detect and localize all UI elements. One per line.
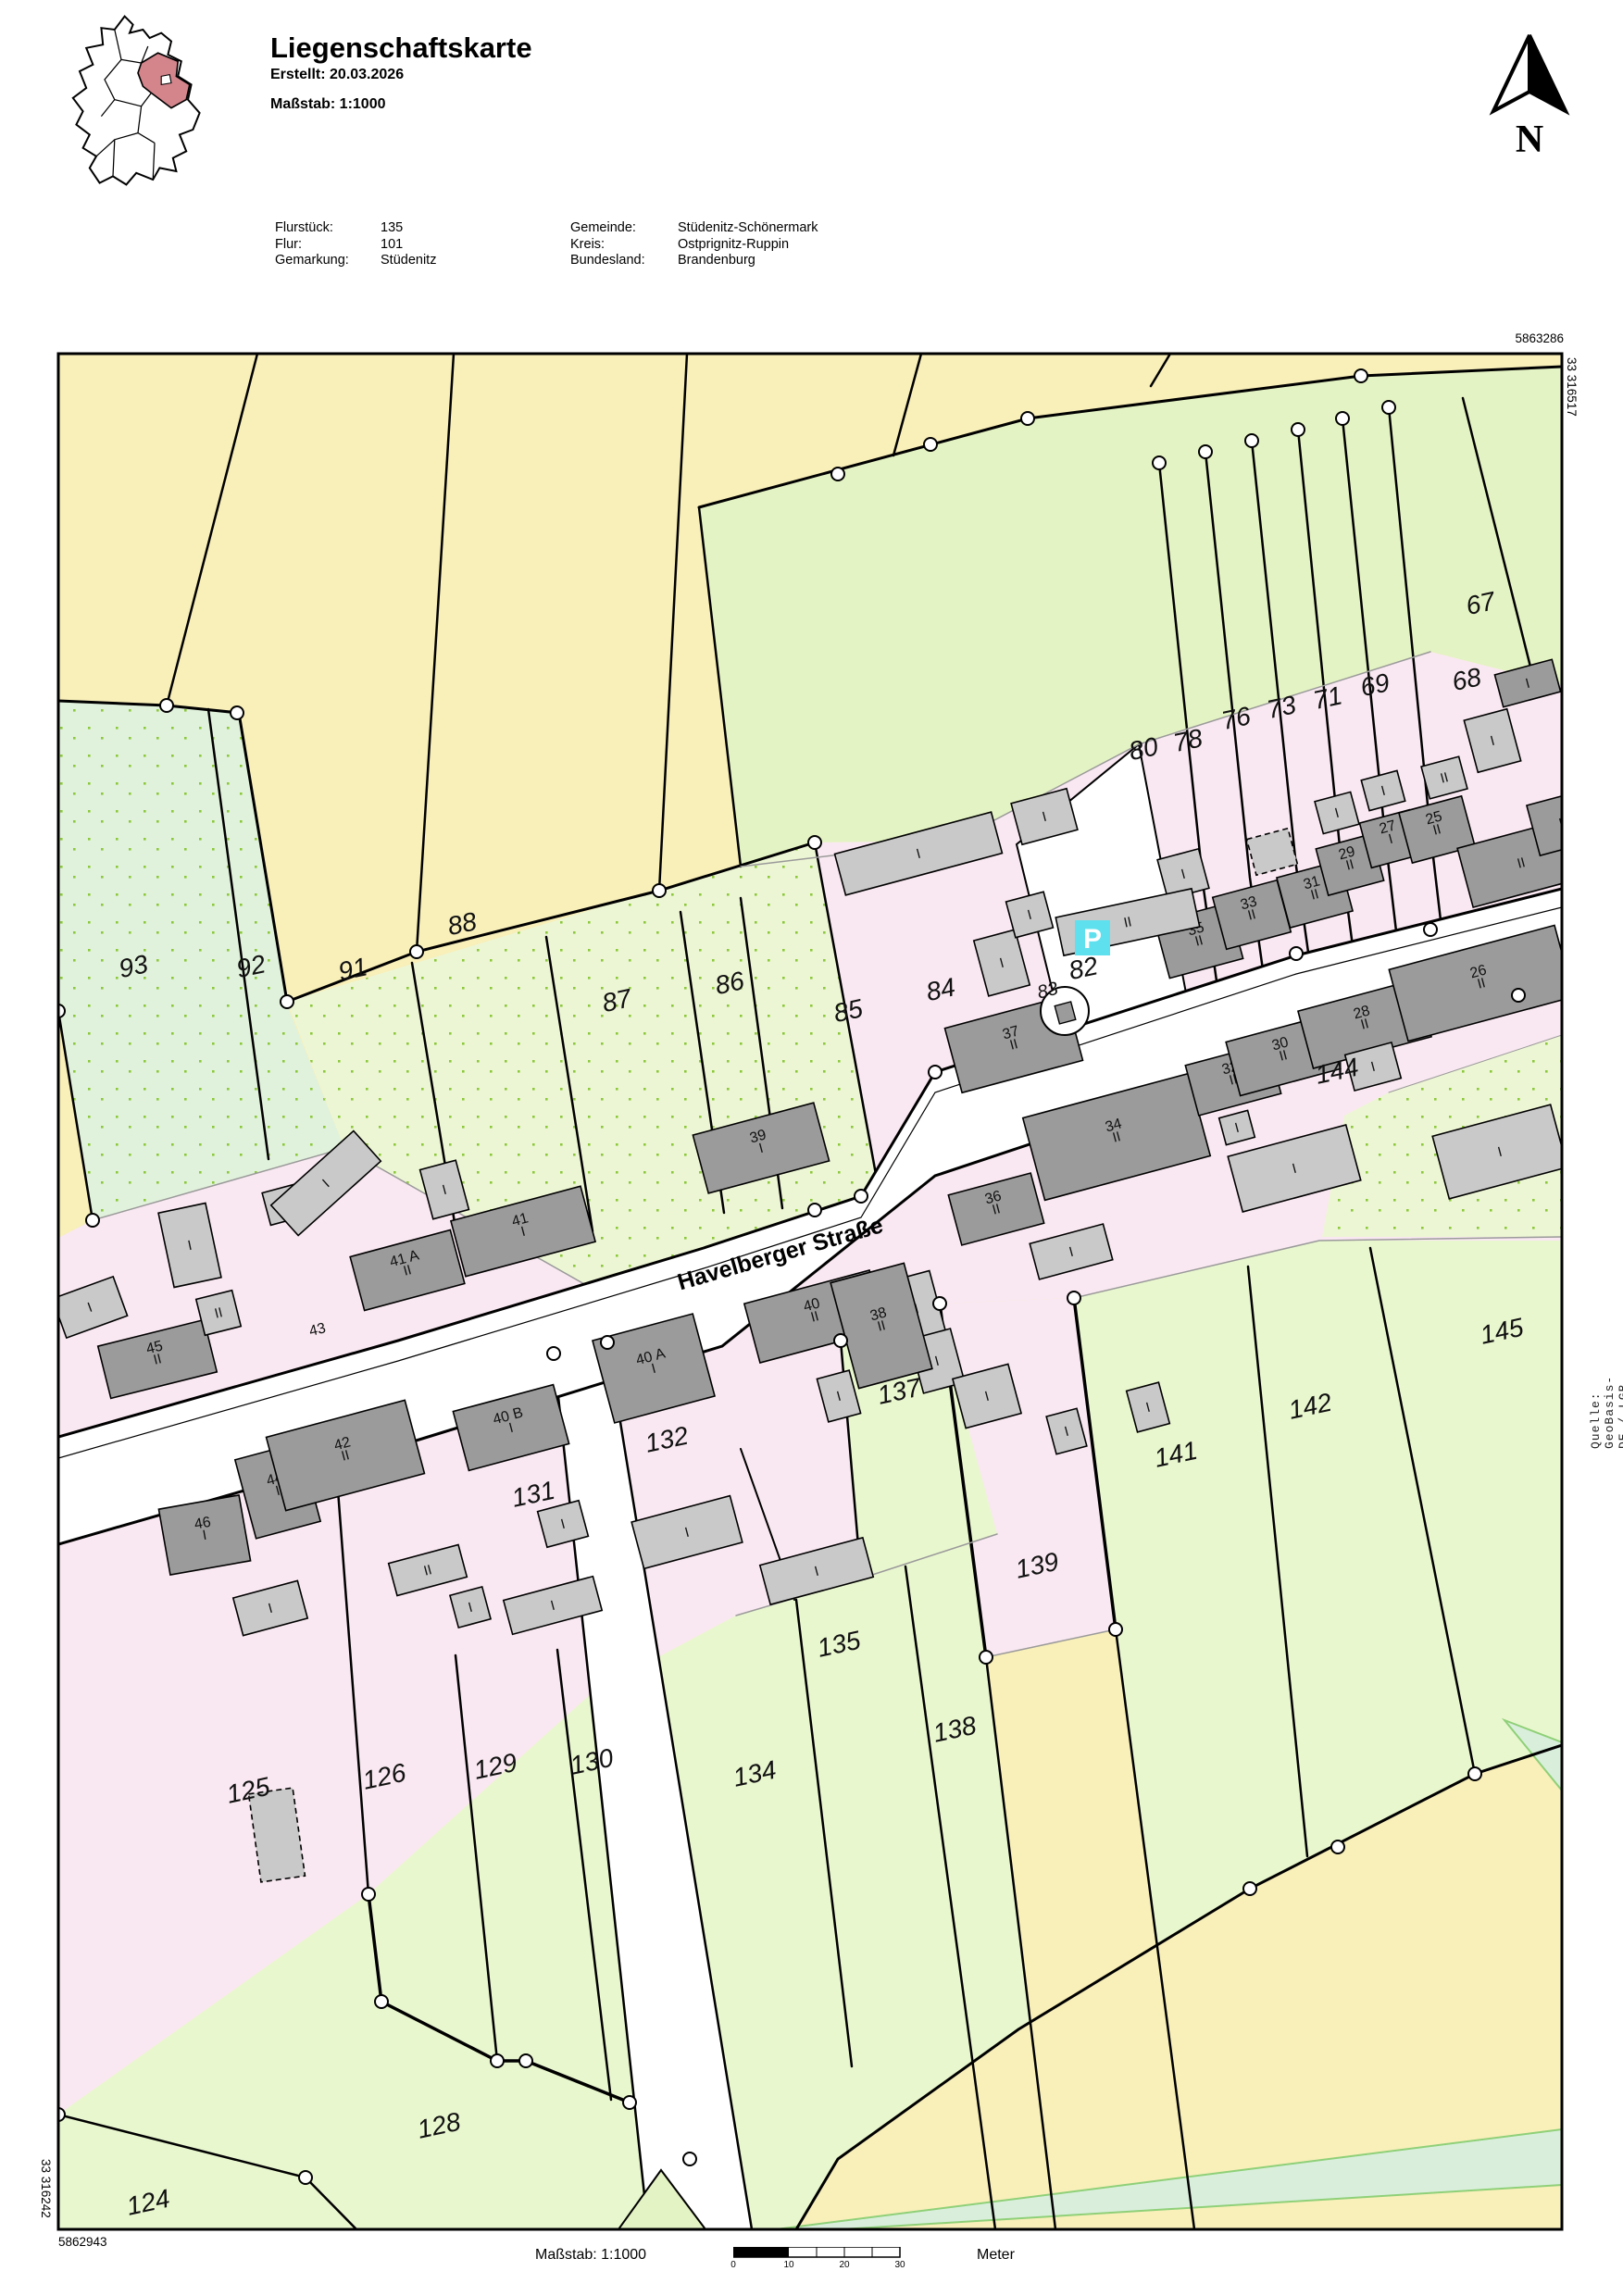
boundary-node — [653, 884, 666, 897]
boundary-node — [834, 1334, 847, 1347]
boundary-node — [933, 1297, 946, 1310]
boundary-node — [623, 2096, 636, 2109]
boundary-node — [1067, 1291, 1080, 1304]
scale-tick: 0 — [730, 2260, 736, 2270]
building: II — [196, 1291, 241, 1335]
parcel-label-91: 91 — [336, 952, 370, 986]
cadastral-map: III45IIIIIII41 AI41II39IIIIII37II35II33I… — [0, 0, 1623, 2296]
boundary-node — [808, 836, 821, 849]
boundary-node — [281, 995, 293, 1008]
boundary-node — [929, 1066, 942, 1079]
footer-unit: Meter — [977, 2247, 1015, 2264]
boundary-node — [410, 945, 423, 958]
boundary-node — [1290, 947, 1303, 960]
map-content: III45IIIIIII41 AI41II39IIIIII37II35II33I… — [52, 354, 1603, 2229]
boundary-node — [362, 1888, 375, 1901]
boundary-node — [831, 468, 844, 480]
boundary-node — [519, 2054, 532, 2067]
boundary-node — [86, 1214, 99, 1227]
boundary-node — [1199, 445, 1212, 458]
boundary-node — [1468, 1767, 1481, 1780]
boundary-node — [980, 1651, 993, 1664]
boundary-node — [1243, 1882, 1256, 1895]
scale-tick: 30 — [894, 2260, 905, 2270]
boundary-node — [1424, 923, 1437, 936]
boundary-node — [1245, 434, 1258, 447]
boundary-node — [683, 2152, 696, 2165]
scale-tick: 20 — [839, 2260, 849, 2270]
house-number: 46 — [194, 1515, 213, 1533]
building: I46 — [158, 1495, 250, 1575]
boundary-node — [1336, 412, 1349, 425]
liegenschaftskarte-page: Liegenschaftskarte Erstellt: 20.03.2026 … — [0, 0, 1623, 2296]
boundary-node — [855, 1190, 868, 1203]
boundary-node — [160, 699, 173, 712]
boundary-node — [491, 2054, 504, 2067]
boundary-node — [1512, 989, 1525, 1002]
boundary-node — [547, 1347, 560, 1360]
boundary-node — [1355, 369, 1367, 382]
boundary-node — [924, 438, 937, 451]
boundary-node — [1292, 423, 1305, 436]
parcel-label-69: 69 — [1358, 668, 1392, 702]
boundary-node — [299, 2171, 312, 2184]
scale-tick: 10 — [783, 2260, 793, 2270]
scale-bar: 0102030 — [733, 2247, 909, 2265]
parcel-label-71: 71 — [1311, 680, 1345, 715]
parking-letter: P — [1083, 924, 1102, 955]
scale-bar-graphic — [733, 2247, 909, 2260]
boundary-node — [231, 706, 243, 719]
boundary-node — [375, 1995, 388, 2008]
boundary-node — [1382, 401, 1395, 414]
footer-scale: Maßstab: 1:1000 — [535, 2247, 646, 2264]
boundary-node — [1153, 456, 1166, 469]
boundary-node — [1331, 1841, 1344, 1853]
boundary-node — [1021, 412, 1034, 425]
boundary-node — [601, 1336, 614, 1349]
boundary-node — [1109, 1623, 1122, 1636]
boundary-node — [808, 1204, 821, 1217]
parcel-label-84: 84 — [924, 972, 958, 1006]
